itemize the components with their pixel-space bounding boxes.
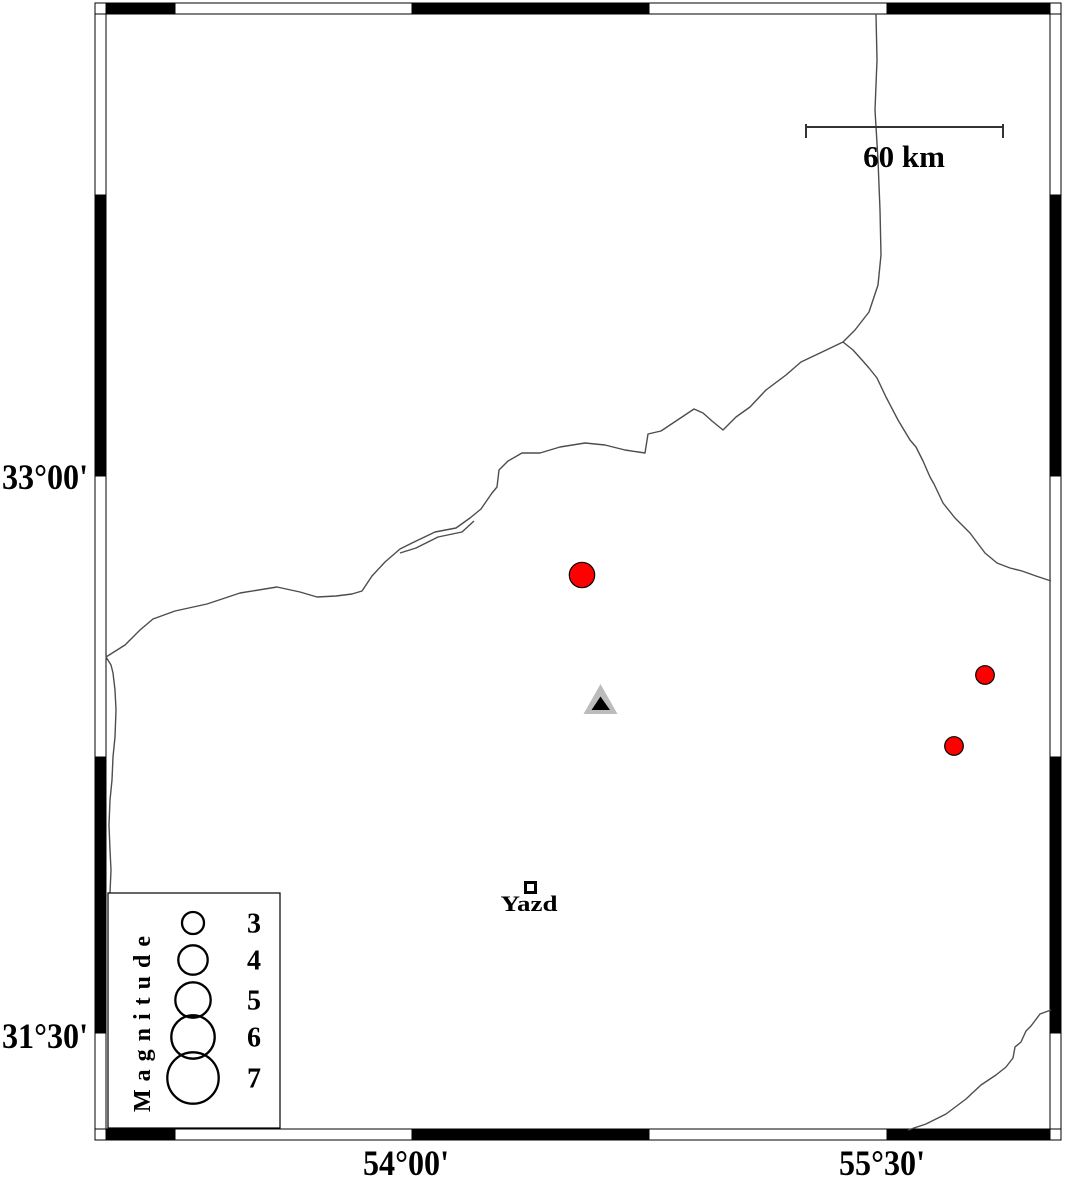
map-figure: 60 km Yazd Magnitude 34567 33°00' 31°30'…: [0, 0, 1066, 1178]
scale-bar-bracket: [806, 124, 1003, 138]
frame-cell: [1050, 1033, 1061, 1129]
frame-cell: [1050, 195, 1061, 476]
map-canvas: 60 km Yazd Magnitude 34567 33°00' 31°30'…: [0, 0, 1066, 1178]
frame-cell: [95, 14, 106, 195]
frame-cell: [649, 3, 887, 14]
boundary-line-main_border: [106, 342, 1051, 657]
earthquake-marker: [569, 562, 594, 587]
frame-cell: [412, 3, 649, 14]
frame-cell: [175, 1129, 412, 1140]
earthquake-marker: [945, 737, 964, 756]
frame-cell: [887, 1129, 1050, 1140]
city-label: Yazd: [501, 891, 558, 916]
lat-label-33: 33°00': [2, 457, 88, 497]
station-marker: [584, 684, 618, 714]
lat-label-31-30: 31°30': [2, 1016, 88, 1056]
scale-bar: 60 km: [806, 124, 1003, 174]
frame-corner-cell: [1050, 1129, 1061, 1140]
legend: Magnitude 34567: [108, 893, 280, 1128]
frame-corner-cell: [95, 3, 106, 14]
lon-label-54: 54°00': [363, 1143, 449, 1178]
frame-cell: [1050, 757, 1061, 1033]
boundary-line-north_road: [843, 14, 881, 342]
boundary-line-double_echo: [400, 521, 474, 553]
legend-title: Magnitude: [130, 928, 156, 1112]
frame-cell: [887, 3, 1050, 14]
frame-cell: [106, 3, 175, 14]
frame-corner-cell: [95, 1129, 106, 1140]
frame-corner-cell: [1050, 3, 1061, 14]
frame-cell: [1050, 476, 1061, 757]
city-marker-group: Yazd: [501, 883, 558, 917]
frame-cell: [1050, 14, 1061, 195]
frame-cell: [95, 476, 106, 757]
legend-magnitude-label: 3: [247, 909, 261, 940]
earthquake-marker: [976, 666, 995, 685]
legend-magnitude-label: 6: [247, 1023, 261, 1054]
frame-cell: [95, 195, 106, 476]
scale-bar-label: 60 km: [863, 139, 945, 174]
boundary-line-southeast: [908, 1010, 1051, 1130]
frame-cell: [106, 1129, 175, 1140]
legend-magnitude-label: 4: [247, 946, 261, 977]
frame-cell: [175, 3, 412, 14]
frame-cell: [95, 1033, 106, 1129]
scale-bar-line: [806, 124, 1003, 138]
boundary-line-west_edge: [106, 657, 116, 893]
earthquake-markers: [569, 562, 994, 755]
frame-cell: [412, 1129, 649, 1140]
frame-cell: [649, 1129, 887, 1140]
legend-magnitude-label: 5: [247, 986, 261, 1017]
legend-magnitude-label: 7: [247, 1064, 261, 1095]
lon-label-55-30: 55°30': [839, 1143, 925, 1178]
frame-cell: [95, 757, 106, 1033]
